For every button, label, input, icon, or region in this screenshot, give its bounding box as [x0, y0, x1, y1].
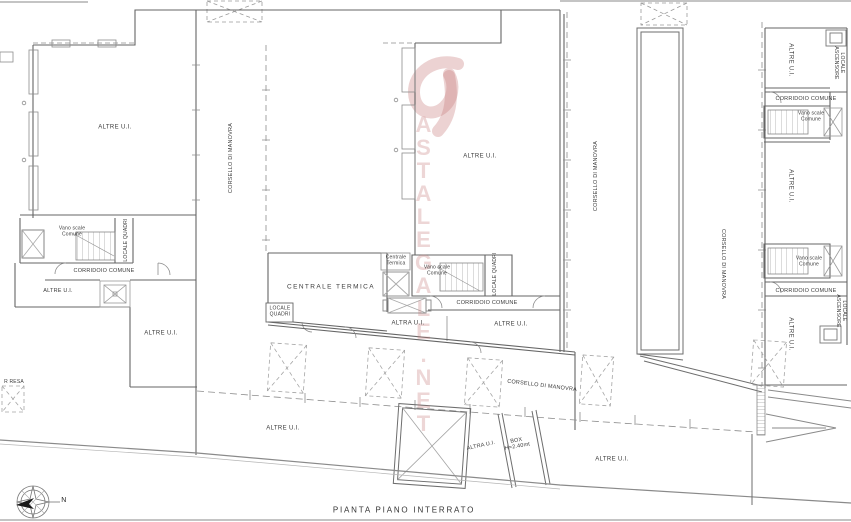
stair-label-vano-scale-left: Vano scale Comune — [54, 226, 90, 238]
edge-label-resa: R RESA — [4, 380, 24, 386]
room-label-centrale-termica-small: Centrale Termica — [381, 255, 411, 267]
stair-label-vano-scale-right-top: Vano scale Comune — [793, 111, 829, 123]
room-label-altra-ui-center: ALTRA U.I. — [391, 321, 424, 328]
compass-rose-icon — [16, 486, 60, 518]
room-label-locale-ascensore-mid: LOCALE ASCENSORE — [834, 289, 846, 333]
corridor-label-corridoio-right-mid: CORRIDOIO COMUNE — [776, 288, 837, 294]
stair-label-vano-scale-right-mid: Vano scale Comune — [791, 256, 827, 268]
room-label-locale-ascensore-top: LOCALE ASCENSORE — [832, 41, 844, 85]
stair-label-vano-scale-center: Vano scale Comune — [419, 265, 455, 277]
room-label-centrale-termica: CENTRALE TERMICA — [287, 283, 375, 290]
corridor-label-corsello-3: CORSELLO DI MANOVRA — [720, 229, 726, 299]
room-label-altre-ui-right-mid: ALTRE U.I. — [787, 169, 794, 202]
room-label-altre-ui-left: ALTRE U.I. — [98, 125, 131, 132]
room-label-altre-ui-center-right: ALTRE U.I. — [494, 322, 527, 329]
corridor-label-corsello-1: CORSELLO DI MANOVRA — [228, 123, 234, 193]
room-label-altre-ui-left-small: ALTRE U.I. — [43, 288, 72, 294]
room-label-altre-ui-right-bottom: ALTRE U.I. — [787, 317, 794, 350]
ramp-top-hatched-box — [641, 3, 687, 25]
room-label-locale-quadri-left: LOCALE QUADRI — [124, 218, 130, 262]
left-shaft-box — [100, 281, 130, 307]
right-shafts — [824, 108, 842, 276]
corridor-label-corridoio-left: CORRIDOIO COMUNE — [74, 268, 135, 274]
edge-hatched-box — [2, 386, 24, 412]
exit-arrow — [766, 390, 851, 442]
room-label-altre-ui-bottom-right: ALTRE U.I. — [595, 457, 628, 464]
room-label-altre-ui-left-lower: ALTRE U.I. — [144, 331, 177, 338]
floorplan-page: ASTALEGALE.NET ALTRE U.I. ALTRE U.I. ALT… — [0, 0, 851, 522]
corridor-label-corridoio-center: CORRIDOIO COMUNE — [457, 300, 518, 306]
room-label-altre-ui-center: ALTRE U.I. — [463, 154, 496, 161]
room-label-locale-quadri-center: LOCALE QUADRI — [493, 252, 499, 296]
room-label-locale-quadri-small: LOCALE QUADRI — [265, 306, 295, 318]
top-hatched-box-left — [207, 1, 262, 22]
room-label-altre-ui-right-top: ALTRE U.I. — [787, 43, 794, 76]
hatched-wall — [757, 385, 765, 435]
centrale-termica-walls — [266, 253, 387, 332]
corridor-label-corridoio-right-top: CORRIDOIO COMUNE — [776, 96, 837, 102]
corridor-label-corsello-2: CORSELLO DI MANOVRA — [593, 141, 599, 211]
site-boundary — [0, 434, 851, 505]
ramp — [637, 28, 762, 392]
page-title: PIANTA PIANO INTERRATO — [333, 505, 475, 514]
room-label-altre-ui-bottom-left: ALTRE U.I. — [266, 426, 299, 433]
compass-north-label: N — [61, 497, 66, 505]
